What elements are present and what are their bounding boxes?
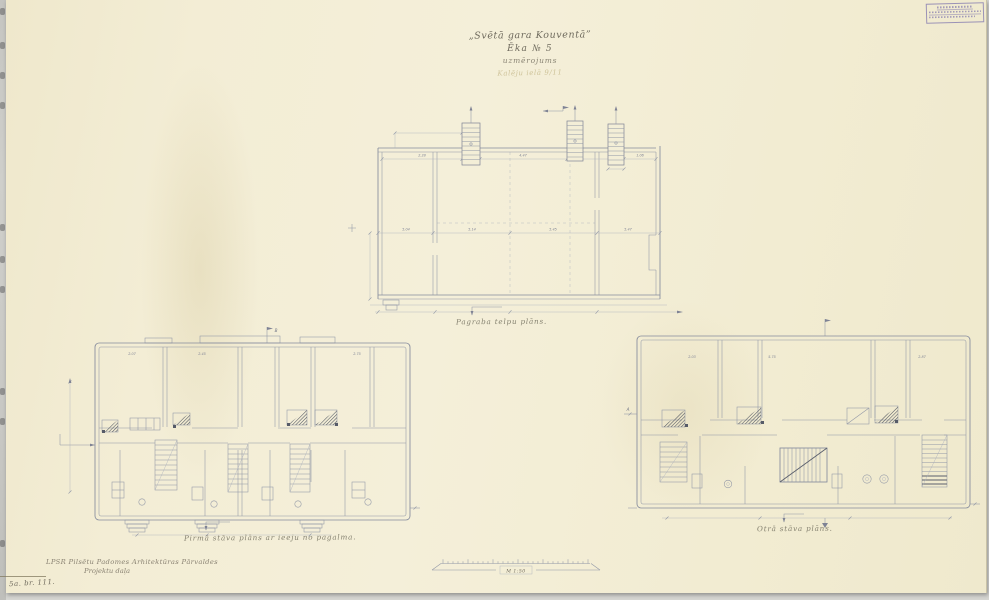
caption-leader-line	[780, 510, 810, 524]
sheet-title: „Svētā gara Kouventā”	[438, 29, 622, 42]
title-block: „Svētā gara Kouventā” Ēka № 5 uzmērojums…	[438, 30, 622, 77]
dim-label: 1.06	[636, 154, 644, 158]
dim-label: 2.28	[418, 154, 426, 158]
binding-mark	[0, 256, 5, 263]
second-floor-plan-caption: Otrā stāva plāns.	[757, 524, 833, 534]
dim-label: 5.14	[468, 228, 476, 232]
binding-mark	[0, 102, 5, 109]
dim-label: 2.03	[688, 355, 696, 359]
scale-label: M 1:50	[505, 568, 525, 574]
dim-label: 2.75	[353, 352, 361, 356]
organization-name: LPSR Pilsētu Padomes Arhitektūras Pārval…	[46, 558, 218, 566]
pencil-fold-line	[0, 576, 46, 577]
binding-mark	[0, 224, 5, 231]
section-marker: B	[275, 328, 278, 333]
scanned-drawing-sheet: { "sheet": { "paper_color": "#f3eed7", "…	[0, 0, 989, 600]
building-number: Ēka № 5	[438, 44, 622, 54]
dim-label: 4.47	[519, 154, 527, 158]
dim-label: 2.87	[918, 355, 926, 359]
second-floor-plan-drawing: A 2.03 5.75 2.87	[622, 316, 989, 531]
dim-label: 2.45	[198, 352, 206, 356]
scale-bar: M 1:50	[428, 555, 612, 583]
first-floor-plan-caption: Pirmā stāva plāns ar ieeju no pagalma.	[184, 532, 356, 542]
dim-label: 5.75	[768, 355, 776, 359]
organization-department: Projektu daļa	[84, 567, 218, 575]
basement-plan-drawing: 5.04 5.14 5.45 5.47 2.28 4.47 1.06	[345, 103, 700, 343]
caption-leader-line	[468, 303, 508, 317]
first-floor-plan-drawing: B	[52, 322, 432, 540]
dim-label: 5.04	[402, 228, 410, 232]
organization-block: LPSR Pilsētu Padomes Arhitektūras Pārval…	[46, 558, 218, 575]
binding-mark	[0, 8, 5, 15]
caption-leader-line	[200, 518, 240, 532]
section-marker: A	[626, 407, 630, 412]
pencil-address-note: Kalēju ielā 9/11	[438, 67, 622, 78]
dim-label: 2.07	[128, 352, 136, 356]
stamp-text-row	[929, 14, 975, 19]
archive-stamp	[926, 2, 985, 24]
binding-mark	[0, 42, 5, 49]
binding-mark	[0, 388, 5, 395]
binding-mark	[0, 540, 5, 547]
dim-label: 5.47	[624, 228, 632, 232]
binding-mark	[0, 286, 5, 293]
binding-mark	[0, 418, 5, 425]
basement-plan-caption: Pagraba telpu plāns.	[456, 317, 547, 327]
binding-mark	[0, 72, 5, 79]
document-type: uzmērojums	[438, 56, 622, 65]
dim-label: 5.45	[549, 228, 557, 232]
